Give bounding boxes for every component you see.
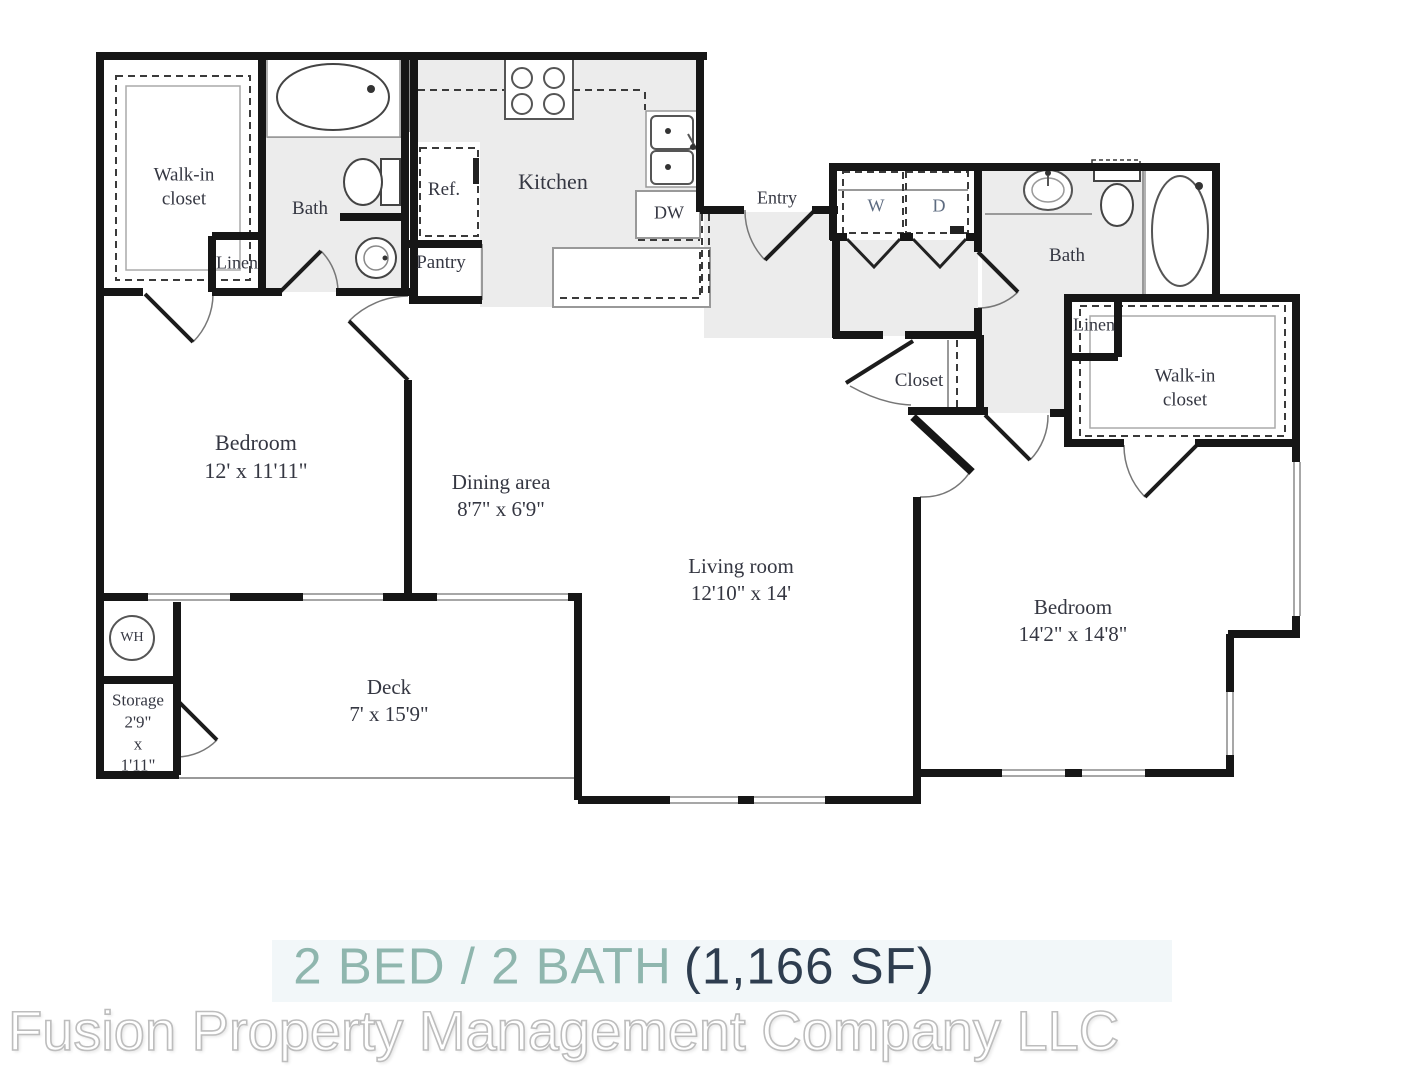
room-label-bath-2: Bath bbox=[1049, 244, 1085, 268]
room-label-dishwasher: DW bbox=[654, 201, 684, 224]
pedestal-sink-icon bbox=[356, 238, 396, 278]
room-label-linen-1: Linen bbox=[197, 251, 277, 274]
toilet-icon bbox=[344, 159, 400, 205]
stove-icon bbox=[505, 57, 573, 119]
watermark-text: Fusion Property Management Company LLC bbox=[8, 998, 1119, 1063]
room-label-pantry: Pantry bbox=[416, 251, 466, 275]
room-label-entry: Entry bbox=[757, 186, 797, 209]
room-label-walk-in-closet-2: Walk-in closet bbox=[1135, 365, 1235, 414]
room-label-dining-area: Dining area8'7" x 6'9" bbox=[391, 469, 611, 523]
bathtub-icon bbox=[267, 58, 400, 137]
room-label-linen-2: Linen bbox=[1054, 313, 1134, 336]
room-label-walk-in-closet-1: Walk-in closet bbox=[134, 164, 234, 213]
plan-title: 2 BED / 2 BATH(1,166 SF) bbox=[293, 937, 935, 996]
bathtub2-icon bbox=[1145, 167, 1216, 296]
floorplan-canvas bbox=[0, 0, 1424, 1080]
room-label-washer: W bbox=[868, 194, 885, 217]
room-label-dryer: D bbox=[933, 194, 946, 217]
room-label-closet: Closet bbox=[874, 369, 964, 393]
room-label-kitchen: Kitchen bbox=[518, 168, 588, 196]
plan-title-sqft: (1,166 SF) bbox=[684, 938, 935, 995]
floorplan: Walk-in closet Linen Bath Ref. Pantry Ki… bbox=[0, 0, 1424, 1080]
room-label-bedroom-2: Bedroom14'2" x 14'8" bbox=[953, 594, 1193, 648]
kitchen-sink-icon bbox=[646, 111, 698, 187]
room-label-deck: Deck7' x 15'9" bbox=[299, 674, 479, 728]
room-label-living-room: Living room12'10" x 14' bbox=[621, 553, 861, 607]
plan-title-beds-baths: 2 BED / 2 BATH bbox=[293, 938, 672, 995]
room-label-storage: Storage2'9" x 1'11" bbox=[98, 690, 178, 777]
room-label-bedroom-1: Bedroom12' x 11'11" bbox=[146, 429, 366, 485]
room-label-water-heater: WH bbox=[120, 629, 143, 647]
vanity-sink-icon bbox=[1024, 170, 1072, 210]
room-label-bath-1: Bath bbox=[292, 197, 328, 221]
room-label-fridge: Ref. bbox=[428, 178, 460, 202]
